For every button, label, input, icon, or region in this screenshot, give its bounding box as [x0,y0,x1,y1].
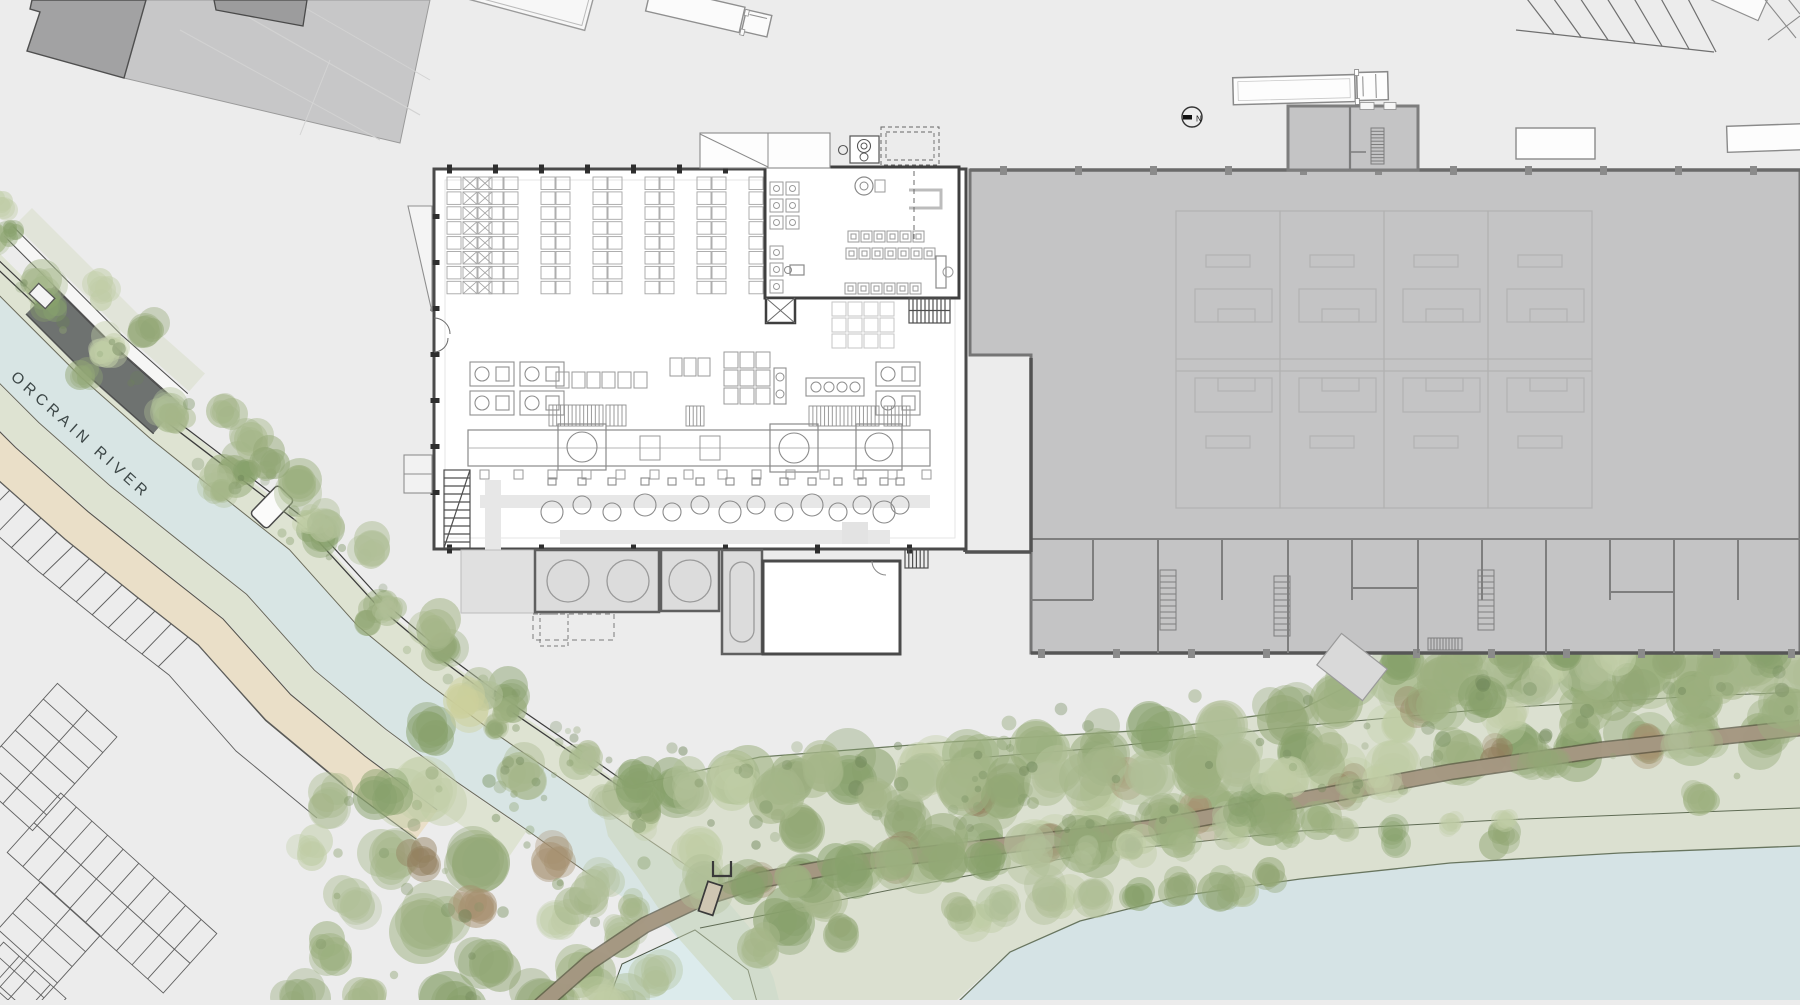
svg-text:N: N [1196,115,1202,124]
